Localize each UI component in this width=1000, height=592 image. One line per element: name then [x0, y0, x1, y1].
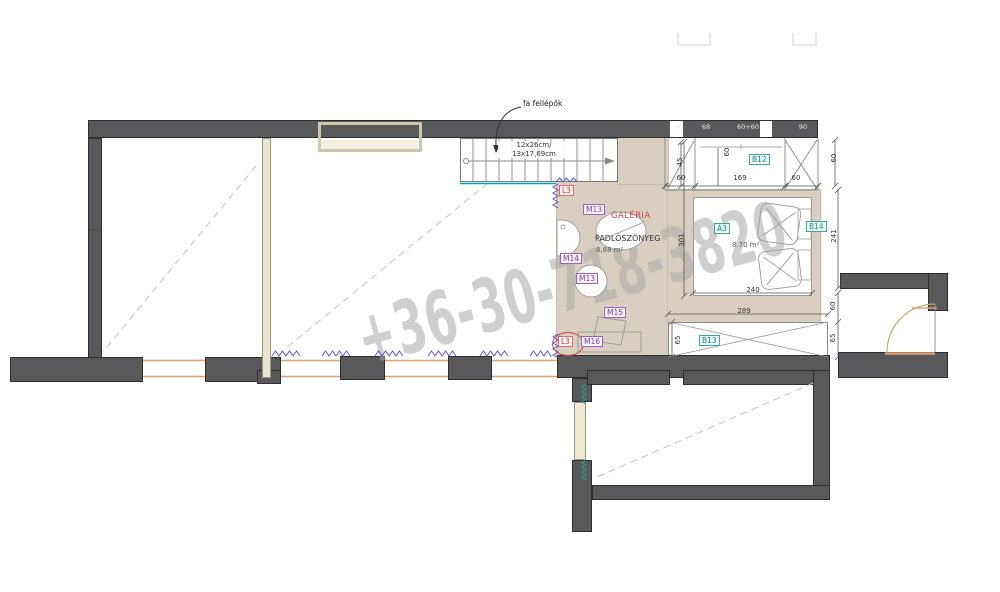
galeria-area-text: 8,88 m² [596, 246, 623, 254]
dim-240: 240 [746, 286, 759, 294]
marker-l3-lower: L3 [558, 336, 573, 347]
marker-m16: M16 [581, 336, 603, 347]
dim-60-bottom-right: 60 [792, 174, 801, 182]
marker-l3-upper: L3 [559, 185, 574, 196]
heater-zigzags [272, 178, 577, 358]
marker-a3: A3 [714, 223, 730, 234]
dim-60-cabinet: 60 [723, 148, 731, 157]
marker-m13-upper: M13 [583, 204, 605, 215]
galeria-title: GALÉRIA [611, 211, 651, 221]
stairs-dim-line2: 13x17,69cm [498, 150, 570, 159]
dim-289: 289 [737, 307, 750, 315]
door-swing [885, 304, 937, 354]
roof-window-outlines [678, 33, 816, 45]
room-a3-area-text: 8.70 m² [732, 241, 759, 249]
marker-m13-lower: M13 [576, 273, 598, 284]
cabinet-b13-cross [668, 322, 828, 357]
wall-text-4: 90 [799, 123, 807, 131]
dim-60-right-col: 60 [829, 302, 837, 311]
dim-60-bottom-left: 60 [677, 174, 686, 182]
wall-text-3: 60+60 [737, 123, 759, 131]
floor-finish-label: PADLÓSZŐNYEG [595, 234, 660, 243]
floor-plan-canvas: +36-30-718-3820 [0, 0, 1000, 592]
dim-60-outer-top: 60 [830, 154, 838, 163]
stairs-dimension-text: 12x26cm/ 13x17,69cm [498, 141, 570, 158]
galeria-furniture [557, 212, 646, 352]
wall-text-2: 68 [702, 123, 710, 131]
marker-m15: M15 [604, 307, 626, 318]
marker-b14: B14 [806, 221, 827, 232]
room-a3-furniture [757, 202, 811, 290]
marker-b13: B13 [699, 335, 720, 346]
window-lines [143, 361, 557, 377]
dim-241: 241 [830, 229, 838, 242]
wall-text-1: 40 [675, 123, 683, 131]
dim-301: 301 [678, 233, 686, 246]
dim-65-right-col: 65 [829, 334, 837, 343]
stairs-note: fa fellépők [523, 99, 562, 108]
stairs-dim-line1: 12x26cm/ [498, 141, 570, 150]
dashed-diagonals [103, 166, 813, 477]
marker-m14: M14 [560, 253, 582, 264]
dim-65-left: 65 [674, 336, 682, 345]
dim-169: 169 [733, 174, 746, 182]
marker-b12: B12 [749, 154, 770, 165]
dim-45: 45 [676, 158, 684, 167]
door-seal-zigzags [582, 384, 586, 480]
